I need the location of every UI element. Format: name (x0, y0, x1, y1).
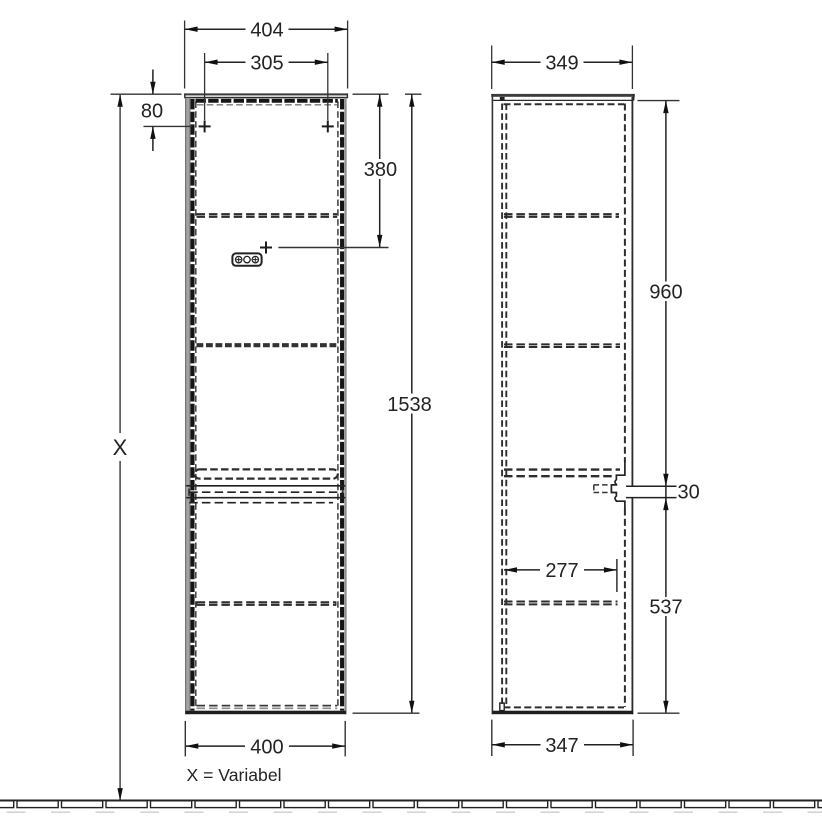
svg-text:347: 347 (545, 735, 578, 757)
svg-text:X = Variabel: X = Variabel (187, 765, 282, 785)
svg-text:30: 30 (678, 482, 700, 504)
svg-text:960: 960 (649, 282, 682, 304)
svg-text:537: 537 (649, 596, 682, 618)
svg-text:X: X (113, 435, 128, 460)
svg-text:404: 404 (250, 19, 283, 41)
svg-text:1538: 1538 (387, 394, 432, 416)
svg-text:277: 277 (545, 560, 578, 582)
svg-text:305: 305 (250, 52, 283, 74)
svg-text:400: 400 (250, 736, 283, 758)
svg-text:349: 349 (545, 52, 578, 74)
svg-text:80: 80 (141, 101, 163, 123)
svg-text:380: 380 (364, 159, 397, 181)
